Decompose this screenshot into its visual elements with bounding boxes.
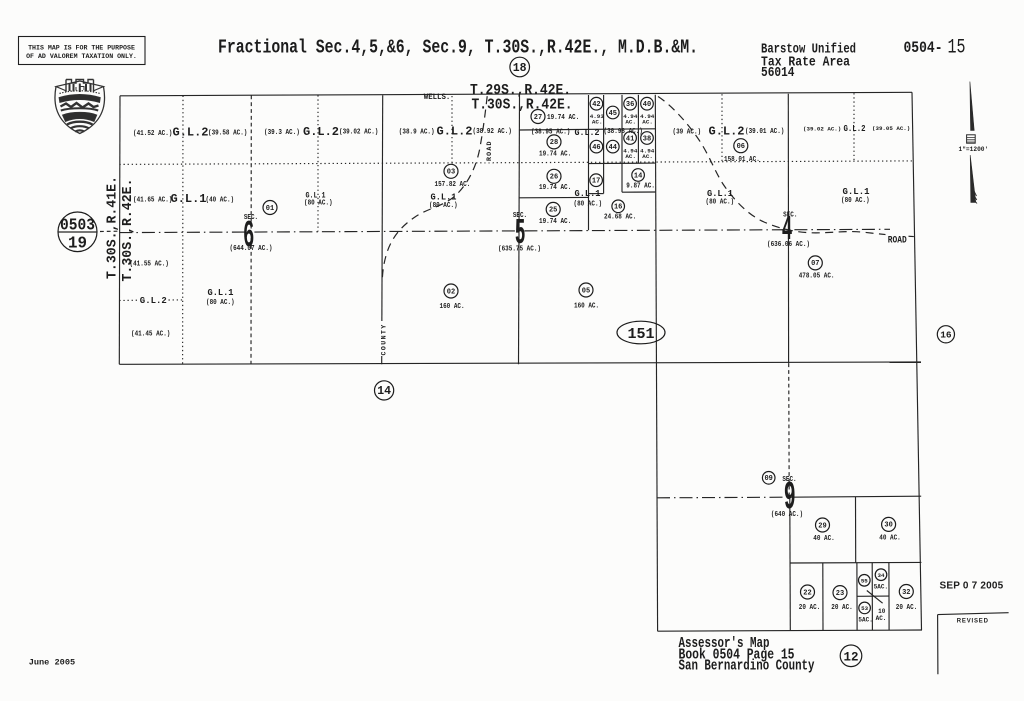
svg-text:158.01 AC.: 158.01 AC. [724,156,760,164]
svg-text:18: 18 [513,62,527,75]
svg-text:40: 40 [643,101,651,109]
svg-text:(39.01 AC.): (39.01 AC.) [745,128,784,136]
svg-text:5AC.: 5AC. [874,584,888,591]
svg-text:26: 26 [550,174,558,182]
svg-text:(41.55 AC.): (41.55 AC.) [130,261,169,269]
svg-text:53: 53 [861,605,868,612]
svg-text:24.68 AC.: 24.68 AC. [604,213,636,221]
svg-text:01: 01 [266,205,274,213]
svg-text:157.82 AC.: 157.82 AC. [435,181,471,189]
svg-text:22: 22 [803,589,811,597]
svg-text:(39.58 AC.): (39.58 AC.) [208,130,247,138]
svg-text:(80 AC.): (80 AC.) [706,199,735,207]
svg-text:19.74 AC.: 19.74 AC. [539,184,571,192]
svg-text:0503: 0503 [60,217,95,236]
svg-text:44: 44 [609,144,617,152]
svg-text:(40 AC.): (40 AC.) [206,196,235,204]
svg-text:(635.75 AC.): (635.75 AC.) [498,245,541,253]
svg-text:19.74 AC.: 19.74 AC. [539,218,571,226]
svg-text:G.L.2: G.L.2 [437,124,473,138]
svg-text:41: 41 [626,135,634,143]
svg-text:27: 27 [534,114,542,122]
svg-text:REVISED: REVISED [957,619,989,625]
svg-text:151: 151 [627,326,654,343]
svg-text:34: 34 [878,572,885,579]
svg-text:5AC.: 5AC. [858,617,872,624]
svg-text:June 2005: June 2005 [29,658,75,668]
svg-text:(39.02 AC.): (39.02 AC.) [339,129,378,137]
svg-text:(39 AC.): (39 AC.) [673,129,702,137]
svg-text:9.87 AC.: 9.87 AC. [626,183,655,191]
svg-text:160 AC.: 160 AC. [574,303,599,311]
svg-text:G.L.2: G.L.2 [709,124,745,138]
svg-text:28: 28 [550,139,558,147]
svg-text:G.L.1: G.L.1 [575,188,601,199]
svg-text:(80 AC.): (80 AC.) [206,299,235,307]
svg-text:46: 46 [592,144,600,152]
svg-text:ROAD: ROAD [888,235,907,246]
svg-text:32: 32 [902,589,910,597]
svg-text:(38.92 AC.): (38.92 AC.) [473,128,512,136]
svg-text:AC.: AC. [642,153,653,160]
svg-text:AC.: AC. [592,118,603,125]
svg-text:(80 AC.): (80 AC.) [841,197,870,205]
svg-text:G.L.2: G.L.2 [303,125,339,139]
svg-text:42: 42 [592,101,600,109]
svg-text:15: 15 [948,37,966,60]
svg-text:OF AD VALOREM TAXATION ONLY.: OF AD VALOREM TAXATION ONLY. [26,53,137,60]
svg-text:478.05 AC.: 478.05 AC. [799,273,835,281]
svg-text:G.L.2: G.L.2 [844,124,866,134]
svg-text:(80 AC.): (80 AC.) [574,200,603,208]
svg-text:(644.07 AC.): (644.07 AC.) [230,245,273,253]
svg-text:20 AC.: 20 AC. [896,604,918,612]
svg-text:160 AC.: 160 AC. [440,303,465,311]
svg-text:(39.3 AC.): (39.3 AC.) [264,129,300,137]
svg-text:SEP 0 7 2005: SEP 0 7 2005 [940,581,1004,592]
svg-text:THIS MAP IS FOR THE PURPOSE: THIS MAP IS FOR THE PURPOSE [28,45,135,52]
svg-text:T.30S.,R.42E.: T.30S.,R.42E. [472,98,573,114]
svg-text:COUNTY: COUNTY [381,323,388,355]
svg-text:(41.65 AC.): (41.65 AC.) [133,197,172,205]
svg-text:1"=1200': 1"=1200' [959,146,989,153]
svg-text:(41.45 AC.): (41.45 AC.) [131,331,170,339]
svg-text:WELLS.: WELLS. [424,92,451,102]
svg-text:56014: 56014 [761,65,795,81]
svg-text:(636.06 AC.): (636.06 AC.) [767,241,810,249]
svg-text:(640 AC.): (640 AC.) [771,511,803,519]
svg-text:25: 25 [549,207,557,215]
svg-text:16: 16 [614,204,622,212]
svg-text:Fractional Sec.4,5,&6, Sec.9,: Fractional Sec.4,5,&6, Sec.9, T.30S.,R.4… [218,37,698,59]
svg-text:AC.: AC. [642,118,653,125]
svg-text:(80 AC.): (80 AC.) [429,202,458,210]
svg-text:G.L.2: G.L.2 [575,127,600,138]
svg-text:29: 29 [818,522,826,530]
svg-text:(39.05 AC.): (39.05 AC.) [872,125,910,132]
svg-text:38: 38 [643,135,651,143]
svg-text:20 AC.: 20 AC. [799,604,821,612]
svg-text:19.74 AC.: 19.74 AC. [539,151,571,159]
svg-text:17: 17 [592,178,600,186]
svg-text:19.74 AC.: 19.74 AC. [547,114,579,122]
svg-text:23: 23 [836,590,844,598]
svg-text:30: 30 [884,522,892,530]
svg-text:14: 14 [377,385,391,398]
svg-text:ROAD: ROAD [486,140,493,161]
svg-text:10: 10 [878,608,886,615]
svg-text:(41.52 AC.): (41.52 AC.) [133,130,172,138]
svg-text:G.L.2: G.L.2 [173,126,209,140]
svg-text:19: 19 [68,235,87,254]
svg-text:06: 06 [737,143,745,151]
svg-text:02: 02 [447,288,455,296]
svg-text:(80 AC.): (80 AC.) [304,199,333,207]
svg-text:G.L.1: G.L.1 [707,188,733,199]
svg-text:14: 14 [634,172,642,180]
svg-text:40 AC.: 40 AC. [879,534,901,542]
svg-text:36: 36 [626,101,634,109]
svg-text:AC.: AC. [876,615,887,622]
svg-text:T.29S.,R.42E.: T.29S.,R.42E. [470,83,571,99]
svg-text:San Bernardino County: San Bernardino County [679,658,815,675]
svg-text:(39.02 AC.): (39.02 AC.) [803,125,841,132]
svg-text:55: 55 [861,578,868,585]
svg-text:40 AC.: 40 AC. [813,535,835,543]
svg-text:G.L.1: G.L.1 [171,192,207,206]
svg-text:45: 45 [609,110,617,118]
svg-text:12: 12 [843,650,858,664]
svg-text:0504-: 0504- [904,39,943,57]
svg-text:G.L.1: G.L.1 [843,186,870,197]
svg-text:16: 16 [940,330,952,341]
svg-text:T.30S.,R.41E.: T.30S.,R.41E. [105,176,121,279]
svg-text:07: 07 [811,260,819,268]
svg-text:09: 09 [764,475,772,483]
svg-text:G.L.2: G.L.2 [140,295,167,306]
svg-text:AC.: AC. [625,153,636,160]
svg-text:20 AC.: 20 AC. [831,604,853,612]
svg-text:AC.: AC. [625,118,636,125]
svg-text:05: 05 [582,287,590,295]
svg-text:(38.9 AC.): (38.9 AC.) [399,129,435,137]
svg-text:(38.98 AC.): (38.98 AC.) [604,128,643,136]
svg-text:G.L.1: G.L.1 [208,287,234,298]
svg-text:03: 03 [447,169,455,177]
